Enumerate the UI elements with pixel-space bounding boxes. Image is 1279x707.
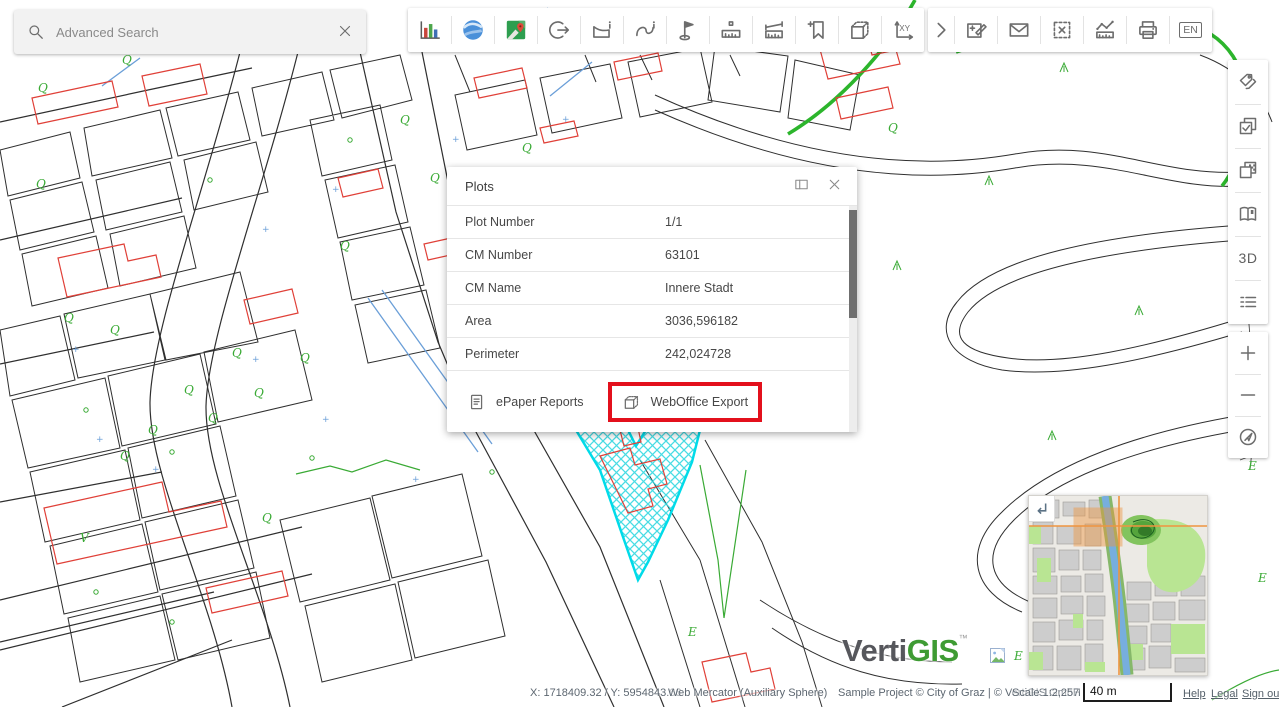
set-flag-button[interactable] (666, 8, 709, 52)
polyline-info-button[interactable] (623, 8, 666, 52)
layer-check-button[interactable] (1228, 104, 1268, 148)
collapse-corner-icon (1032, 499, 1052, 519)
advanced-search-bar (14, 10, 366, 54)
svg-text:Q: Q (340, 239, 350, 253)
toolbar-expand-button[interactable] (928, 8, 954, 52)
polygon-info-icon (589, 17, 615, 43)
svg-text:Q: Q (120, 449, 130, 463)
weboffice-export-label: WebOffice Export (651, 395, 749, 409)
edit-redlining-icon (963, 17, 989, 43)
svg-text:+: + (562, 115, 570, 125)
plots-dialog: Plots Plot Number 1/1 CM Number 63101 CM… (447, 167, 857, 432)
document-icon (467, 392, 487, 412)
right-toolbar-tools: 3D (1228, 60, 1268, 324)
view-3d-button[interactable]: 3D (1228, 236, 1268, 280)
view-3d-label: 3D (1239, 250, 1258, 266)
box-3d-button[interactable] (838, 8, 881, 52)
search-input[interactable] (56, 25, 326, 40)
row-value: 242,024728 (665, 347, 731, 361)
polyline-info-icon (632, 17, 658, 43)
measure-band-button[interactable] (752, 8, 795, 52)
svg-text:E: E (1247, 459, 1257, 473)
svg-text:Q: Q (232, 346, 242, 360)
selected-plot-highlight (576, 430, 700, 580)
svg-text:Q: Q (148, 423, 158, 437)
top-toolbar-more: EN (928, 8, 1212, 52)
flag-icon (675, 17, 701, 43)
svg-text:+: + (332, 185, 340, 195)
row-label: CM Name (465, 281, 521, 295)
mail-icon (1006, 17, 1032, 43)
row-label: Area (465, 314, 491, 328)
search-icon (26, 22, 46, 42)
svg-text:Q: Q (38, 81, 48, 95)
layer-transparency-button[interactable] (1228, 148, 1268, 192)
dialog-dock-button[interactable] (793, 176, 810, 196)
svg-text:Q: Q (110, 323, 120, 337)
row-label: CM Number (465, 248, 532, 262)
locate-arrow-icon (1236, 425, 1260, 449)
scale-bar: 40 m (1083, 683, 1172, 702)
printer-icon (1135, 17, 1161, 43)
row-label: Perimeter (465, 347, 519, 361)
dialog-scrollbar-thumb[interactable] (849, 210, 857, 318)
epaper-reports-label: ePaper Reports (496, 395, 584, 409)
vertigis-logo: VertiGIS™ (842, 633, 967, 669)
measure-sketch-button[interactable] (1083, 8, 1126, 52)
tags-button[interactable] (1228, 60, 1268, 104)
svg-text:+: + (96, 435, 104, 445)
statistics-chart-icon (417, 17, 443, 43)
svg-text:+: + (322, 415, 330, 425)
row-label: Plot Number (465, 215, 534, 229)
tags-icon (1236, 70, 1260, 94)
xy-axes-icon: XY (890, 17, 916, 43)
boundary-point-markers (84, 138, 494, 624)
dialog-row-cm-name: CM Name Innere Stadt (447, 271, 857, 304)
map-book-button[interactable] (1228, 192, 1268, 236)
dialog-footer: ePaper Reports WebOffice Export (447, 370, 857, 432)
send-mail-button[interactable] (997, 8, 1040, 52)
dialog-close-button[interactable] (826, 176, 843, 196)
session-exit-button[interactable] (537, 8, 580, 52)
legal-link[interactable]: Legal (1211, 688, 1238, 700)
overview-collapse-button[interactable] (1029, 496, 1055, 522)
language-label: EN (1179, 22, 1202, 39)
right-toolbar-zoom (1228, 332, 1268, 458)
svg-text:+: + (452, 135, 460, 145)
clear-selection-button[interactable] (1040, 8, 1083, 52)
polygon-info-button[interactable] (580, 8, 623, 52)
print-button[interactable] (1126, 8, 1169, 52)
svg-text:Q: Q (36, 177, 46, 191)
zoom-in-button[interactable] (1228, 332, 1268, 374)
overview-map (1028, 495, 1208, 676)
exit-arrow-icon (546, 17, 572, 43)
dialog-row-cm-number: CM Number 63101 (447, 238, 857, 271)
scale-bar-label: 40 m (1090, 684, 1117, 698)
bookmark-add-button[interactable] (795, 8, 838, 52)
broken-image-icon (990, 648, 1006, 664)
dialog-title: Plots (465, 179, 793, 194)
epaper-reports-button[interactable]: ePaper Reports (459, 386, 592, 418)
dialog-row-plot-number: Plot Number 1/1 (447, 205, 857, 238)
statistics-chart-button[interactable] (408, 8, 451, 52)
google-maps-button[interactable] (494, 8, 537, 52)
status-coordinates: X: 1718409.32 / Y: 5954843.66 (530, 687, 682, 699)
minus-icon (1236, 383, 1260, 407)
row-value: 63101 (665, 248, 700, 262)
svg-text:Q: Q (888, 121, 898, 135)
dialog-header: Plots (447, 167, 857, 205)
weboffice-export-button[interactable]: WebOffice Export (614, 386, 757, 418)
svg-text:+: + (262, 225, 270, 235)
row-value: Innere Stadt (665, 281, 733, 295)
transparency-icon (1236, 158, 1260, 182)
dock-panel-icon (793, 176, 810, 193)
redlining-button[interactable] (954, 8, 997, 52)
export-cube-icon (622, 392, 642, 412)
svg-text:Q: Q (254, 386, 264, 400)
dialog-row-perimeter: Perimeter 242,024728 (447, 337, 857, 370)
svg-text:Q: Q (262, 511, 272, 525)
svg-text:+: + (72, 345, 80, 355)
row-value: 1/1 (665, 215, 682, 229)
clear-selection-icon (1049, 17, 1075, 43)
ruler-icon (718, 17, 744, 43)
map-book-icon (1236, 202, 1260, 226)
google-earth-icon (460, 17, 486, 43)
svg-text:+: + (152, 465, 160, 475)
svg-text:Q: Q (208, 411, 218, 425)
row-value: 3036,596182 (665, 314, 738, 328)
svg-text:V: V (80, 531, 90, 545)
svg-text:E: E (687, 625, 697, 639)
weboffice-app: QQQQQQQQQQQQQQQQQQVEEEE++++++++++ (0, 0, 1279, 707)
close-icon (826, 176, 843, 193)
top-toolbar-main: XY (408, 8, 924, 52)
svg-text:Q: Q (64, 311, 74, 325)
svg-text:+: + (412, 475, 420, 485)
cube-3d-icon (847, 17, 873, 43)
svg-text:XY: XY (899, 24, 910, 33)
measure-ruler-button[interactable] (709, 8, 752, 52)
svg-text:Q: Q (184, 383, 194, 397)
svg-text:Q: Q (122, 53, 132, 67)
svg-text:E: E (1257, 571, 1267, 585)
logo-trademark: ™ (959, 633, 968, 643)
status-scale: Scale 1:2,257 (1012, 687, 1079, 699)
close-icon (336, 22, 354, 40)
svg-text:Q: Q (300, 351, 310, 365)
locate-button[interactable] (1228, 416, 1268, 458)
logo-verti: Verti (842, 633, 907, 668)
search-close-button[interactable] (336, 22, 354, 43)
legend-button[interactable] (1228, 280, 1268, 324)
chevron-right-icon (928, 17, 954, 43)
status-projection: Web Mercator (Auxiliary Sphere) (668, 687, 827, 699)
overview-map-image[interactable] (1029, 496, 1207, 675)
layer-check-icon (1236, 114, 1260, 138)
bookmark-add-icon (804, 17, 830, 43)
zoom-out-button[interactable] (1228, 374, 1268, 416)
google-earth-button[interactable] (451, 8, 494, 52)
dialog-row-area: Area 3036,596182 (447, 304, 857, 337)
svg-text:Q: Q (400, 113, 410, 127)
legend-list-icon (1236, 290, 1260, 314)
google-maps-icon (503, 17, 529, 43)
measure-sketch-icon (1092, 17, 1118, 43)
sign-out-link[interactable]: Sign out (1242, 688, 1279, 700)
plus-icon (1236, 341, 1260, 365)
coordinates-xy-button[interactable]: XY (881, 8, 924, 52)
logo-gis: GIS (907, 633, 959, 668)
measure-band-icon (761, 17, 787, 43)
svg-text:Q: Q (430, 171, 440, 185)
svg-text:+: + (252, 355, 260, 365)
svg-text:Q: Q (522, 141, 532, 155)
help-link[interactable]: Help (1183, 688, 1206, 700)
tutorial-highlight-box: WebOffice Export (608, 382, 763, 422)
svg-text:E: E (1013, 649, 1023, 663)
language-button[interactable]: EN (1169, 8, 1212, 52)
